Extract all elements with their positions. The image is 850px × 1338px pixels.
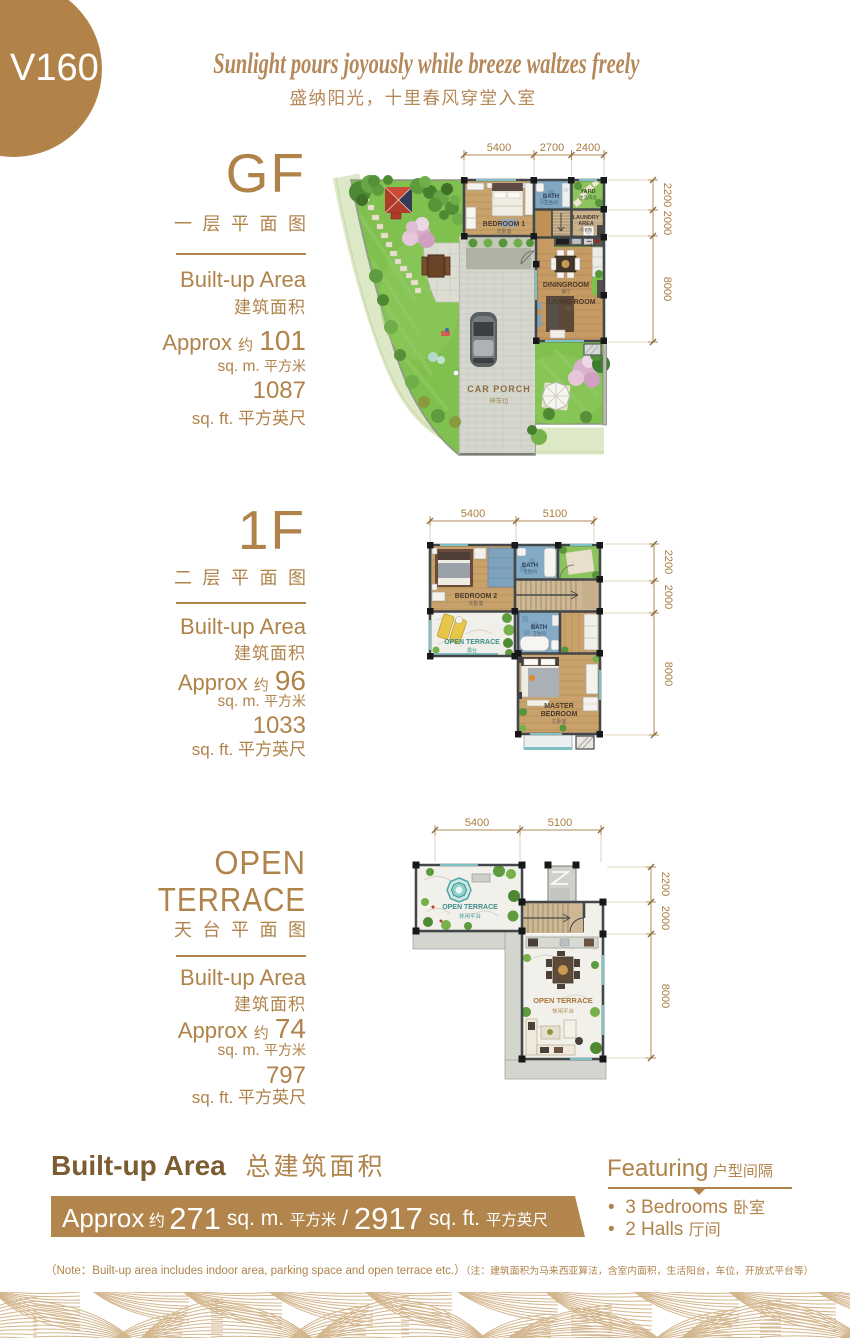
svg-text:生活阳台: 生活阳台 — [579, 194, 597, 201]
svg-text:LIVING ROOM: LIVING ROOM — [548, 299, 595, 306]
svg-text:2000: 2000 — [661, 211, 673, 235]
svg-text:卫生间: 卫生间 — [544, 199, 558, 206]
svg-text:OPEN TERRACE: OPEN TERRACE — [442, 904, 498, 911]
svg-text:8000: 8000 — [661, 277, 673, 301]
svg-text:CAR PORCH: CAR PORCH — [467, 384, 531, 394]
svg-text:餐厅: 餐厅 — [562, 288, 571, 295]
svg-text:洗衣房: 洗衣房 — [580, 226, 592, 232]
svg-text:OPEN TERRACE: OPEN TERRACE — [533, 996, 593, 1005]
svg-text:卫生间: 卫生间 — [523, 568, 537, 575]
svg-text:2400: 2400 — [576, 142, 600, 154]
svg-text:2000: 2000 — [662, 585, 674, 609]
svg-text:2700: 2700 — [540, 142, 564, 154]
svg-text:主卧室: 主卧室 — [551, 718, 566, 725]
svg-text:8000: 8000 — [662, 662, 674, 686]
svg-text:BEDROOM 1: BEDROOM 1 — [483, 221, 526, 228]
svg-text:休闲平台: 休闲平台 — [552, 1007, 575, 1015]
svg-text:客厅: 客厅 — [566, 306, 575, 313]
svg-text:次卧室: 次卧室 — [496, 228, 511, 235]
svg-text:8000: 8000 — [659, 984, 671, 1008]
svg-text:次卧室: 次卧室 — [468, 600, 483, 607]
svg-text:DININGROOM: DININGROOM — [543, 282, 589, 289]
svg-text:MASTER: MASTER — [544, 703, 574, 710]
svg-text:BEDROOM 2: BEDROOM 2 — [455, 593, 498, 600]
svg-text:5100: 5100 — [543, 508, 567, 520]
svg-text:2200: 2200 — [661, 183, 673, 207]
svg-text:休闲平台: 休闲平台 — [459, 912, 482, 920]
svg-text:停车位: 停车位 — [489, 396, 509, 405]
svg-text:2200: 2200 — [662, 550, 674, 574]
svg-text:2200: 2200 — [659, 872, 671, 896]
svg-text:5400: 5400 — [465, 817, 489, 829]
svg-text:卫生间: 卫生间 — [532, 630, 546, 637]
svg-text:露台: 露台 — [467, 647, 477, 654]
svg-text:5400: 5400 — [487, 142, 511, 154]
svg-text:5400: 5400 — [461, 508, 485, 520]
svg-text:OPEN TERRACE: OPEN TERRACE — [444, 639, 500, 646]
svg-text:BEDROOM: BEDROOM — [541, 711, 578, 718]
svg-text:5100: 5100 — [548, 817, 572, 829]
svg-text:2000: 2000 — [659, 906, 671, 930]
